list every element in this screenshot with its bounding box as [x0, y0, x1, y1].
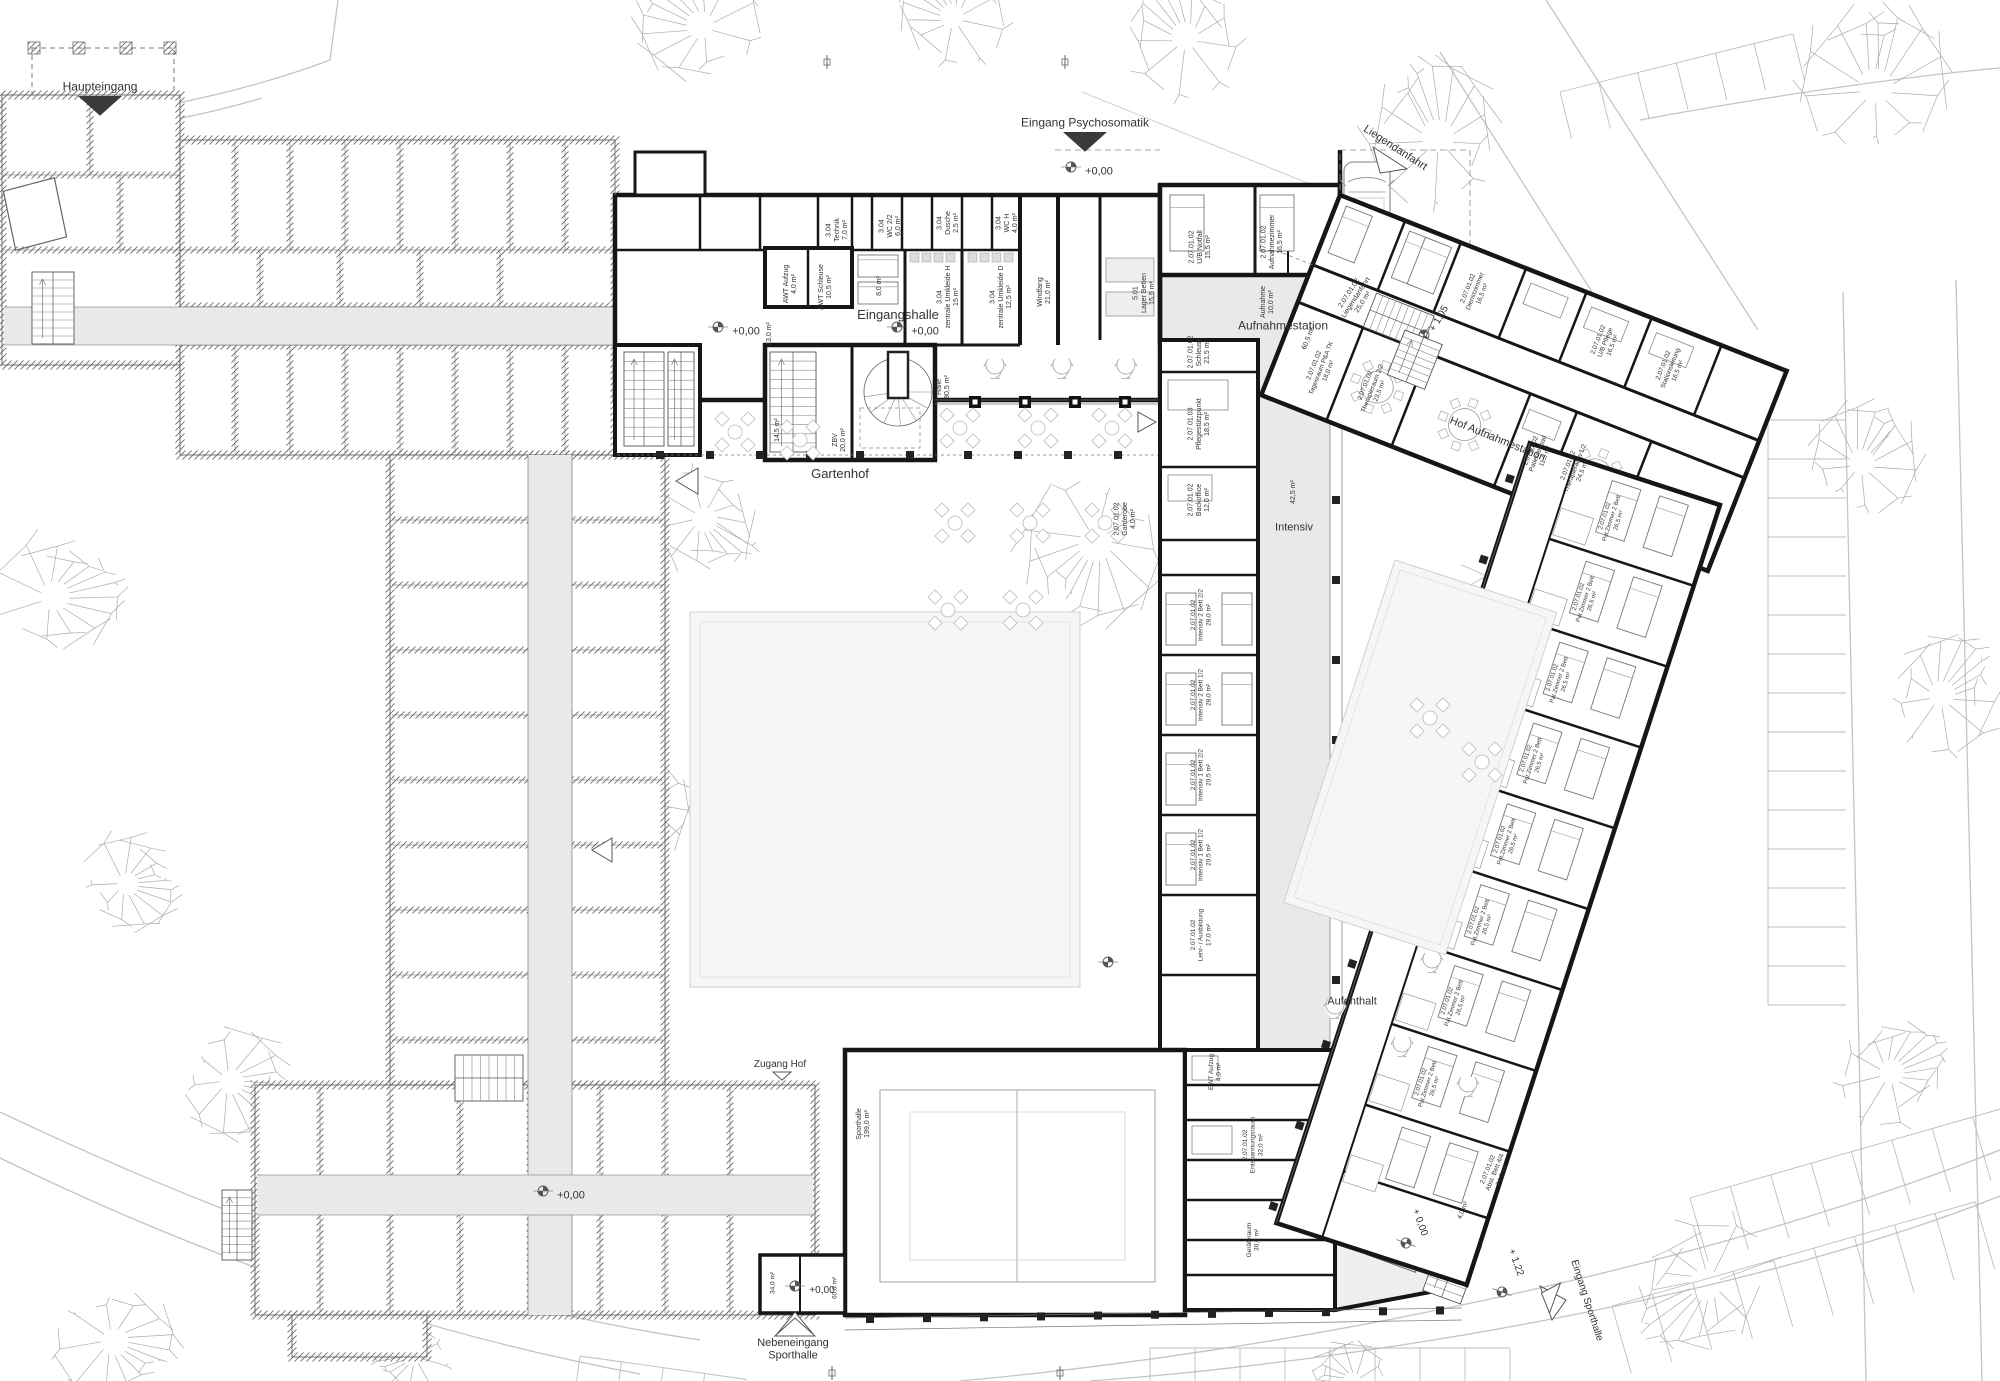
label-r-13qm: 13,0 m²: [766, 321, 773, 345]
tree-icon: [1893, 634, 2000, 758]
label-r-schleuse: 2.07.01.02Schleuse21,5 m²: [1188, 335, 1211, 368]
label-eingang-sporthalle: Eingang Sporthalle: [1568, 1259, 1605, 1343]
level-marker-icon: [1061, 162, 1081, 172]
label-lvl-psychosomatik: +0,00: [1085, 165, 1113, 177]
garden-table-icon: [1018, 408, 1058, 448]
label-nebeneingang-sporthalle: NebeneingangSporthalle: [757, 1337, 829, 1361]
entrance-arrow-icon: [773, 1072, 791, 1080]
parking-stalls: [1560, 34, 1804, 139]
garden-table-icon: [940, 408, 980, 448]
tree-icon: [1793, 2, 1953, 144]
label-lvl-altbau-nord: +0,00: [732, 325, 760, 337]
parking-stalls: [577, 1356, 747, 1381]
garden-table-icon: [935, 503, 975, 543]
tree-icon: [1833, 1021, 1948, 1129]
label-eingang-psychosomatik: Eingang Psychosomatik: [1021, 116, 1150, 130]
floor-plan-canvas: 60,5 m²2.07.01.02Tagesraum P&A TK18,0 m²…: [0, 0, 2000, 1381]
level-marker-icon: [1098, 957, 1118, 967]
tree-icon: [84, 831, 183, 933]
tree-icon: [52, 1293, 184, 1381]
label-r-34qm: 34,0 m²: [770, 1271, 777, 1294]
label-r-windfang: Windfang21,0 m²: [1037, 277, 1052, 307]
label-r-backoffice: 2.07.01.02Backoffice12,0 m²: [1188, 483, 1211, 516]
label-aufenthalt: Aufenthalt: [1327, 995, 1377, 1007]
tree-icon: [0, 529, 128, 648]
label-lvl-altbau-sued: +0,00: [557, 1189, 585, 1201]
label-r-aufnahme: Aufnahme10,0 m²: [1260, 286, 1275, 318]
label-eingangshalle: Eingangshalle: [857, 307, 939, 322]
label-r-145qm: 14,5 m²: [774, 417, 781, 441]
garden-table-icon: [715, 412, 755, 452]
label-r-garderobe: 2.07.01.02Garderobe4,0 m²: [1114, 502, 1137, 536]
parking-stalls: [1612, 1202, 1995, 1373]
tree-icon: [1307, 1340, 1383, 1381]
label-r-425qm: 42,5 m²: [1290, 479, 1297, 503]
label-lvl-eingangshalle: +0,00: [911, 325, 939, 337]
floor-plan-page: 60,5 m²2.07.01.02Tagesraum P&A TK18,0 m²…: [0, 0, 2000, 1381]
label-aufnahmestation: Aufnahmestation: [1238, 319, 1328, 333]
label-gartenhof: Gartenhof: [811, 466, 869, 481]
garden-table-icon: [1092, 408, 1132, 448]
label-r-8qm: 8,0 m²: [876, 275, 883, 296]
label-lvl-tip-122: + 1,22: [1506, 1247, 1526, 1278]
label-haupteingang: Haupteingang: [63, 80, 138, 94]
tree-icon: [1011, 481, 1167, 629]
entrance-arrow-icon: [775, 1318, 815, 1336]
garden-table-icon: [1010, 503, 1050, 543]
tree-icon: [899, 0, 1013, 67]
label-r-60qm: 60,0 m²: [832, 1276, 839, 1299]
tree-icon: [1808, 398, 1926, 513]
tree-icon: [631, 0, 761, 81]
label-r-sporthalle: Sporthalle199,0 m²: [856, 1108, 871, 1140]
parking-stalls: [1768, 420, 1846, 1005]
entrance-arrow-icon: [1063, 132, 1107, 152]
label-intensiv: Intensiv: [1275, 521, 1313, 533]
label-zugang-hof: Zugang Hof: [754, 1059, 806, 1070]
tree-icon: [1130, 0, 1247, 104]
